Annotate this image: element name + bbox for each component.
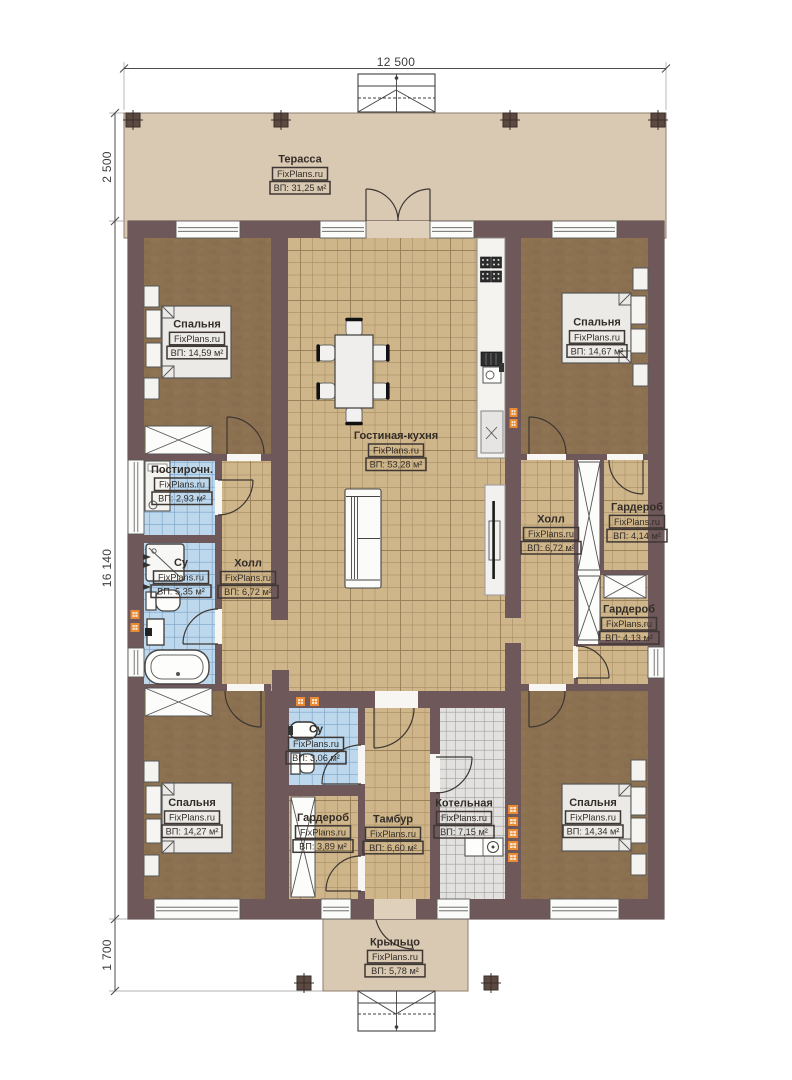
- svg-text:Котельная: Котельная: [435, 798, 493, 810]
- svg-text:12 500: 12 500: [377, 55, 416, 69]
- svg-text:ВП: 31,25 м²: ВП: 31,25 м²: [274, 183, 327, 193]
- svg-text:ВП: 6,72 м²: ВП: 6,72 м²: [527, 543, 575, 553]
- svg-text:Холл: Холл: [537, 514, 565, 526]
- svg-text:Гардероб: Гардероб: [603, 604, 655, 616]
- svg-text:16 140: 16 140: [100, 549, 114, 588]
- svg-text:Су: Су: [309, 723, 324, 735]
- svg-text:ВП: 6,60 м²: ВП: 6,60 м²: [369, 843, 417, 853]
- svg-text:FixPlans.ru: FixPlans.ru: [373, 446, 419, 456]
- svg-text:FixPlans.ru: FixPlans.ru: [574, 332, 620, 342]
- svg-text:FixPlans.ru: FixPlans.ru: [174, 334, 220, 344]
- svg-text:Гардероб: Гардероб: [611, 501, 663, 513]
- svg-text:FixPlans.ru: FixPlans.ru: [225, 573, 271, 583]
- svg-text:ВП: 3,89 м²: ВП: 3,89 м²: [299, 842, 347, 852]
- svg-text:FixPlans.ru: FixPlans.ru: [300, 828, 346, 838]
- svg-text:FixPlans.ru: FixPlans.ru: [528, 529, 574, 539]
- svg-text:ВП: 14,67 м²: ВП: 14,67 м²: [571, 346, 624, 356]
- svg-text:ВП: 2,93 м²: ВП: 2,93 м²: [158, 494, 206, 504]
- svg-text:ВП: 14,59 м²: ВП: 14,59 м²: [171, 348, 224, 358]
- svg-text:FixPlans.ru: FixPlans.ru: [372, 952, 418, 962]
- svg-text:ВП: 53,28 м²: ВП: 53,28 м²: [370, 460, 423, 470]
- svg-text:Гардероб: Гардероб: [297, 812, 349, 824]
- svg-text:Спальня: Спальня: [569, 797, 617, 809]
- svg-text:Терасса: Терасса: [278, 154, 322, 166]
- svg-text:FixPlans.ru: FixPlans.ru: [169, 813, 215, 823]
- svg-text:FixPlans.ru: FixPlans.ru: [158, 573, 204, 583]
- svg-text:FixPlans.ru: FixPlans.ru: [293, 739, 339, 749]
- svg-text:1 700: 1 700: [100, 939, 114, 971]
- svg-text:FixPlans.ru: FixPlans.ru: [277, 169, 323, 179]
- svg-text:Крыльцо: Крыльцо: [370, 936, 420, 948]
- svg-text:ВП: 3,06 м²: ВП: 3,06 м²: [292, 753, 340, 763]
- svg-text:ВП: 14,34 м²: ВП: 14,34 м²: [567, 827, 620, 837]
- svg-text:Тамбур: Тамбур: [373, 813, 413, 825]
- svg-text:FixPlans.ru: FixPlans.ru: [570, 813, 616, 823]
- svg-text:FixPlans.ru: FixPlans.ru: [614, 517, 660, 527]
- svg-text:FixPlans.ru: FixPlans.ru: [606, 619, 652, 629]
- svg-text:ВП: 14,27 м²: ВП: 14,27 м²: [166, 827, 219, 837]
- svg-text:ВП: 4,14 м²: ВП: 4,14 м²: [613, 531, 661, 541]
- svg-text:FixPlans.ru: FixPlans.ru: [159, 480, 205, 490]
- svg-text:FixPlans.ru: FixPlans.ru: [441, 813, 487, 823]
- svg-text:Холл: Холл: [234, 558, 262, 570]
- svg-text:ВП: 4,13 м²: ВП: 4,13 м²: [605, 633, 653, 643]
- svg-text:ВП: 7,15 м²: ВП: 7,15 м²: [440, 827, 488, 837]
- svg-text:Постирочн.: Постирочн.: [151, 464, 213, 476]
- svg-text:Гостиная-кухня: Гостиная-кухня: [354, 430, 438, 442]
- svg-text:ВП: 5,35 м²: ВП: 5,35 м²: [157, 587, 205, 597]
- svg-text:Спальня: Спальня: [173, 318, 221, 330]
- svg-text:Спальня: Спальня: [573, 317, 621, 329]
- svg-text:Спальня: Спальня: [168, 797, 216, 809]
- svg-text:Су: Су: [174, 557, 189, 569]
- svg-text:FixPlans.ru: FixPlans.ru: [370, 829, 416, 839]
- svg-text:2 500: 2 500: [100, 151, 114, 183]
- svg-text:ВП: 6,72 м²: ВП: 6,72 м²: [224, 587, 272, 597]
- svg-text:ВП: 5,78 м²: ВП: 5,78 м²: [371, 966, 419, 976]
